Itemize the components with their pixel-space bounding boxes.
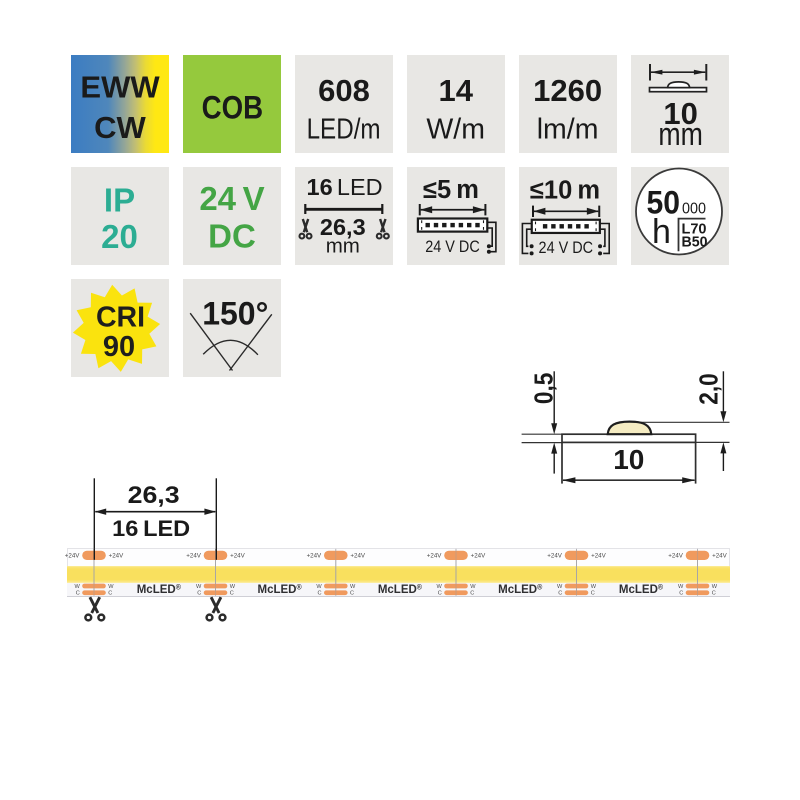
svg-text:+24V: +24V xyxy=(186,553,201,560)
svg-text:+24V: +24V xyxy=(547,553,562,560)
svg-text:14: 14 xyxy=(438,73,473,108)
svg-text:W: W xyxy=(350,584,356,590)
svg-text:W: W xyxy=(712,584,718,590)
svg-text:24 V: 24 V xyxy=(199,180,264,217)
svg-text:≤5 m: ≤5 m xyxy=(423,176,479,204)
svg-text:W: W xyxy=(591,584,597,590)
svg-text:90: 90 xyxy=(103,331,135,363)
svg-text:McLED®: McLED® xyxy=(619,584,664,596)
svg-text:≤10 m: ≤10 m xyxy=(530,177,600,205)
svg-text:C: C xyxy=(230,591,234,597)
svg-text:+24V: +24V xyxy=(712,553,727,560)
svg-text:608: 608 xyxy=(318,73,370,108)
svg-text:16 LED: 16 LED xyxy=(112,516,190,541)
svg-text:20: 20 xyxy=(101,218,138,255)
svg-text:C: C xyxy=(76,591,80,597)
svg-text:+24V: +24V xyxy=(471,553,486,560)
svg-text:C: C xyxy=(712,591,716,597)
svg-text:10: 10 xyxy=(613,444,644,475)
svg-text:DC: DC xyxy=(208,217,256,254)
svg-text:W/m: W/m xyxy=(426,113,485,145)
svg-text:C: C xyxy=(197,591,201,597)
svg-text:C: C xyxy=(350,591,354,597)
svg-text:+24V: +24V xyxy=(65,553,80,560)
svg-text:C: C xyxy=(318,591,322,597)
svg-text:+24V: +24V xyxy=(307,553,322,560)
svg-text:CW: CW xyxy=(94,110,146,145)
svg-text:B50: B50 xyxy=(682,234,708,251)
svg-text:W: W xyxy=(470,584,476,590)
svg-text:2,0: 2,0 xyxy=(693,373,723,405)
svg-text:C: C xyxy=(679,591,683,597)
svg-text:McLED®: McLED® xyxy=(498,584,543,596)
svg-text:W: W xyxy=(437,584,443,590)
svg-text:+24V: +24V xyxy=(668,553,683,560)
svg-text:mm: mm xyxy=(326,234,360,257)
svg-text:W: W xyxy=(557,584,563,590)
svg-text:150°: 150° xyxy=(202,295,268,331)
svg-text:W: W xyxy=(678,584,684,590)
svg-text:LED/m: LED/m xyxy=(307,113,381,145)
svg-text:000: 000 xyxy=(682,200,706,217)
svg-text:+24V: +24V xyxy=(230,553,245,560)
svg-text:lm/m: lm/m xyxy=(537,113,599,145)
svg-text:W: W xyxy=(230,584,236,590)
svg-text:+24V: +24V xyxy=(427,553,442,560)
svg-text:1260: 1260 xyxy=(533,73,602,108)
svg-text:C: C xyxy=(558,591,562,597)
svg-text:24 V DC: 24 V DC xyxy=(425,237,480,256)
svg-text:+24V: +24V xyxy=(109,553,124,560)
svg-text:+24V: +24V xyxy=(350,553,365,560)
svg-text:W: W xyxy=(316,584,322,590)
svg-text:McLED®: McLED® xyxy=(378,584,423,596)
svg-text:C: C xyxy=(438,591,442,597)
svg-text:16 LED: 16 LED xyxy=(307,174,383,200)
svg-text:h: h xyxy=(652,213,671,251)
svg-text:mm: mm xyxy=(658,116,703,152)
svg-text:IP: IP xyxy=(104,181,135,218)
svg-text:24 V DC: 24 V DC xyxy=(539,238,594,257)
svg-text:McLED®: McLED® xyxy=(137,584,182,596)
svg-text:McLED®: McLED® xyxy=(258,584,303,596)
svg-text:26,3: 26,3 xyxy=(128,482,180,509)
svg-text:COB: COB xyxy=(202,90,264,126)
svg-text:EWW: EWW xyxy=(80,70,160,105)
svg-text:W: W xyxy=(75,584,81,590)
svg-text:CRI: CRI xyxy=(96,302,145,334)
svg-text:+24V: +24V xyxy=(591,553,606,560)
svg-text:W: W xyxy=(108,584,114,590)
svg-text:W: W xyxy=(196,584,202,590)
svg-text:C: C xyxy=(108,591,112,597)
svg-text:C: C xyxy=(470,591,474,597)
svg-text:C: C xyxy=(591,591,595,597)
